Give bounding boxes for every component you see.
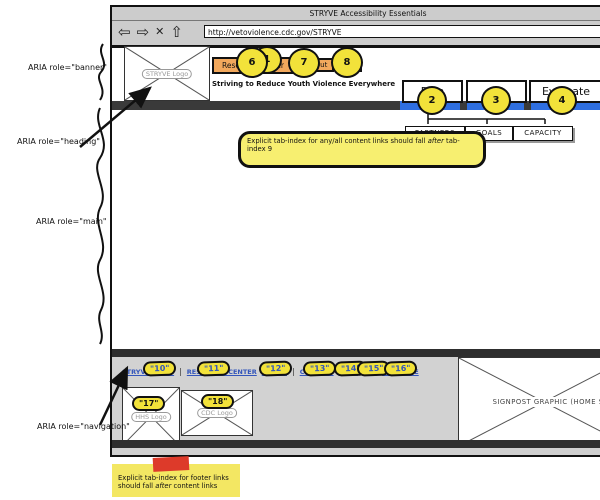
footer-link-stryve-home[interactable]: STRYVE HOME "10" xyxy=(122,368,174,376)
wireframe-canvas: STRYVE Accessibility Essentials ⇦ ⇨ ✕ ⇧ … xyxy=(0,0,600,500)
footer-separator: | xyxy=(292,367,295,376)
footer-top-bar xyxy=(112,349,600,357)
footer-note-text-post: content links xyxy=(171,482,217,490)
aria-heading-label: ARIA role="heading" xyxy=(17,137,100,146)
hhs-logo-placeholder[interactable]: HHS Logo "17" xyxy=(122,387,180,446)
tabindex-oval-contact: 8 xyxy=(331,47,363,78)
footer-navigation-area: STRYVE HOME "10" | RESOURCE CENTER "11" … xyxy=(112,357,600,440)
hhs-logo-label: HHS Logo xyxy=(131,412,171,422)
signpost-label: SIGNPOST GRAPHIC (HOME SCREEN) xyxy=(490,397,600,407)
cdc-logo-label: CDC Logo xyxy=(197,408,237,418)
footer-link-about[interactable]: ABOUT "12" xyxy=(262,368,287,376)
footer-links-row: STRYVE HOME "10" | RESOURCE CENTER "11" … xyxy=(122,367,419,376)
window-bottom-strip xyxy=(112,448,600,455)
footer-link-act[interactable]: ACT "15" xyxy=(363,368,377,376)
toolbar-icons: ⇦ ⇨ ✕ ⇧ xyxy=(118,21,183,43)
footer-link-resource-center[interactable]: RESOURCE CENTER "11" xyxy=(187,368,257,376)
footer-link-plan[interactable]: PLAN "14" xyxy=(339,368,358,376)
content-note-text-pre: Explicit tab-index for any/all content l… xyxy=(247,137,428,145)
tabindex-pill-18: "18" xyxy=(201,394,234,409)
aria-banner-label: ARIA role="banner" xyxy=(28,63,107,72)
browser-window: STRYVE Accessibility Essentials ⇦ ⇨ ✕ ⇧ … xyxy=(110,5,600,457)
tabindex-oval-about: 7 xyxy=(288,48,320,78)
forward-icon[interactable]: ⇨ xyxy=(137,21,150,43)
footer-link-contact[interactable]: CONTACT "13" xyxy=(300,368,334,376)
logo-label: STRYVE Logo xyxy=(142,69,192,79)
tabindex-oval-evaluate: 4 xyxy=(547,86,577,115)
tabindex-pill-17: "17" xyxy=(132,396,165,411)
content-tabindex-note: Explicit tab-index for any/all content l… xyxy=(238,131,486,168)
tabindex-pill-10: "10" xyxy=(143,360,177,376)
tabindex-pill-11: "11" xyxy=(197,360,231,376)
back-icon[interactable]: ⇦ xyxy=(118,21,131,43)
footer-separator: | xyxy=(179,367,182,376)
url-input[interactable]: http://vetoviolence.cdc.gov/STRYVE xyxy=(204,25,600,38)
footer-link-evaluate[interactable]: EVALUATE "16" xyxy=(382,368,418,376)
content-note-text-em: after xyxy=(428,137,444,145)
aria-navigation-label: ARIA role="navigation" xyxy=(37,422,130,431)
banner-brace-squiggle xyxy=(99,44,104,100)
aria-main-label: ARIA role="main" xyxy=(36,217,107,226)
window-bottom-bar xyxy=(112,440,600,448)
window-titlebar: STRYVE Accessibility Essentials xyxy=(112,7,600,21)
tabindex-oval-resource-center: 6 xyxy=(236,47,268,78)
footer-note-text-em: after xyxy=(155,482,171,490)
tabindex-pill-13: "13" xyxy=(303,360,337,376)
tabindex-oval-plan: 2 xyxy=(417,86,447,115)
tabindex-pill-12: "12" xyxy=(259,360,293,376)
browser-toolbar: ⇦ ⇨ ✕ ⇧ http://vetoviolence.cdc.gov/STRY… xyxy=(112,21,600,48)
stop-icon[interactable]: ✕ xyxy=(155,21,164,43)
tabindex-oval-act: 3 xyxy=(481,86,511,115)
tabindex-pill-16: "16" xyxy=(384,360,418,376)
subnav-capacity[interactable]: CAPACITY xyxy=(513,126,573,141)
signpost-graphic-placeholder: SIGNPOST GRAPHIC (HOME SCREEN) xyxy=(458,357,600,447)
home-icon[interactable]: ⇧ xyxy=(170,21,183,43)
site-logo-placeholder[interactable]: STRYVE Logo xyxy=(124,46,210,101)
site-tagline-heading: Striving to Reduce Youth Violence Everyw… xyxy=(212,80,395,88)
red-tape-decoration xyxy=(153,456,190,472)
cdc-logo-placeholder[interactable]: CDC Logo "18" xyxy=(181,390,253,436)
url-text: http://vetoviolence.cdc.gov/STRYVE xyxy=(208,28,341,37)
window-title: STRYVE Accessibility Essentials xyxy=(310,9,427,18)
